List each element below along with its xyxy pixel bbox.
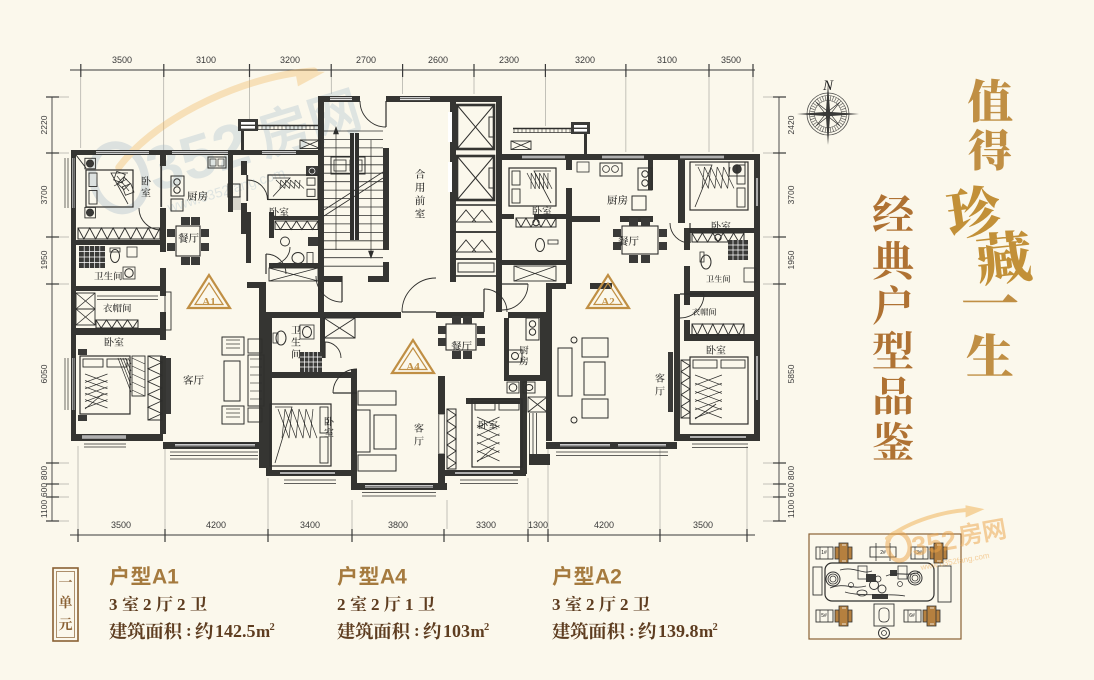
- svg-text:3200: 3200: [575, 55, 595, 65]
- svg-text:2420: 2420: [786, 115, 796, 134]
- svg-text:2: 2: [177, 595, 186, 614]
- svg-text:2700: 2700: [356, 55, 376, 65]
- svg-text:6#: 6#: [909, 613, 915, 619]
- svg-text:139.8: 139.8: [658, 621, 699, 641]
- svg-text:2: 2: [484, 622, 489, 633]
- svg-text:A4: A4: [380, 566, 407, 589]
- svg-text::: :: [186, 621, 192, 640]
- svg-text:2: 2: [270, 622, 275, 633]
- svg-text:3: 3: [552, 595, 561, 614]
- svg-text:3800: 3800: [388, 520, 408, 530]
- svg-text:2: 2: [371, 595, 380, 614]
- svg-text:4200: 4200: [594, 520, 614, 530]
- svg-text:600: 600: [39, 483, 49, 497]
- svg-text:4200: 4200: [206, 520, 226, 530]
- svg-text::: :: [414, 621, 420, 640]
- svg-text:3700: 3700: [39, 185, 49, 204]
- svg-text:2: 2: [586, 595, 595, 614]
- svg-text:1950: 1950: [786, 250, 796, 269]
- svg-text:3400: 3400: [300, 520, 320, 530]
- svg-text:3300: 3300: [476, 520, 496, 530]
- svg-text:A1: A1: [152, 566, 179, 589]
- svg-text:3500: 3500: [721, 55, 741, 65]
- svg-text:m: m: [699, 622, 713, 641]
- svg-text:3500: 3500: [112, 55, 132, 65]
- svg-text:103: 103: [443, 621, 470, 641]
- svg-text:m: m: [256, 622, 270, 641]
- svg-text:3100: 3100: [657, 55, 677, 65]
- svg-text:6050: 6050: [39, 364, 49, 383]
- svg-text:3500: 3500: [693, 520, 713, 530]
- svg-text:600: 600: [786, 483, 796, 497]
- svg-text:A1: A1: [202, 296, 215, 308]
- svg-text:3500: 3500: [111, 520, 131, 530]
- svg-text:2220: 2220: [39, 115, 49, 134]
- svg-text:A2: A2: [601, 296, 615, 308]
- svg-text:1#: 1#: [821, 550, 827, 556]
- svg-text:142.5: 142.5: [215, 621, 256, 641]
- svg-text:m: m: [471, 622, 485, 641]
- svg-text:2: 2: [713, 622, 718, 633]
- svg-text:1: 1: [405, 595, 414, 614]
- svg-text:2: 2: [143, 595, 152, 614]
- svg-text:2: 2: [620, 595, 629, 614]
- svg-text:3200: 3200: [280, 55, 300, 65]
- svg-text:2#: 2#: [880, 550, 886, 556]
- svg-text:1100: 1100: [39, 500, 49, 519]
- svg-text::: :: [629, 621, 635, 640]
- svg-text:2600: 2600: [428, 55, 448, 65]
- svg-text:2300: 2300: [499, 55, 519, 65]
- svg-text:3: 3: [109, 595, 118, 614]
- svg-text:3700: 3700: [786, 185, 796, 204]
- svg-text:1300: 1300: [528, 520, 548, 530]
- svg-text:800: 800: [39, 466, 49, 480]
- svg-text:800: 800: [786, 466, 796, 480]
- svg-text:A4: A4: [406, 361, 420, 373]
- svg-text:5#: 5#: [821, 613, 827, 619]
- svg-text:3100: 3100: [196, 55, 216, 65]
- svg-text:1950: 1950: [39, 250, 49, 269]
- svg-text:2: 2: [337, 595, 346, 614]
- svg-text:A2: A2: [595, 566, 622, 589]
- svg-text:1100: 1100: [786, 500, 796, 519]
- svg-text:5850: 5850: [786, 364, 796, 383]
- svg-text:N: N: [822, 78, 834, 94]
